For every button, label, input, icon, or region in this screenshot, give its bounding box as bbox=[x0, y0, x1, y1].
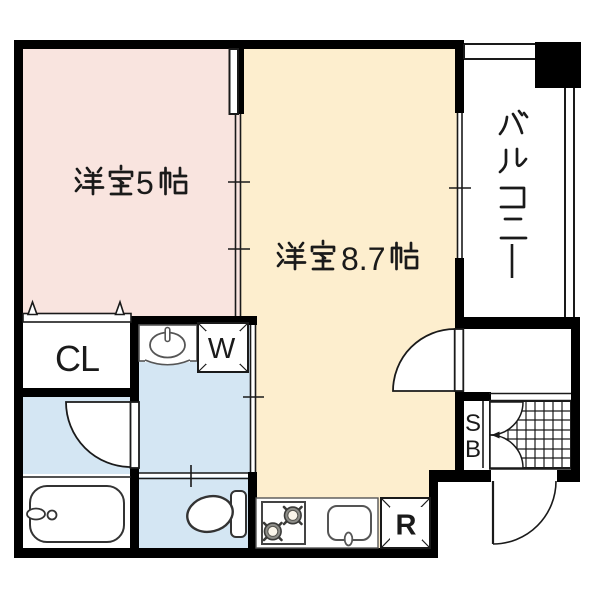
svg-text:B: B bbox=[465, 436, 481, 463]
svg-text:CL: CL bbox=[55, 338, 99, 379]
svg-text:S: S bbox=[465, 410, 481, 437]
svg-text:W: W bbox=[208, 333, 236, 365]
svg-text:5: 5 bbox=[136, 165, 154, 201]
svg-text:8.7: 8.7 bbox=[341, 241, 385, 277]
svg-text:R: R bbox=[396, 510, 417, 542]
